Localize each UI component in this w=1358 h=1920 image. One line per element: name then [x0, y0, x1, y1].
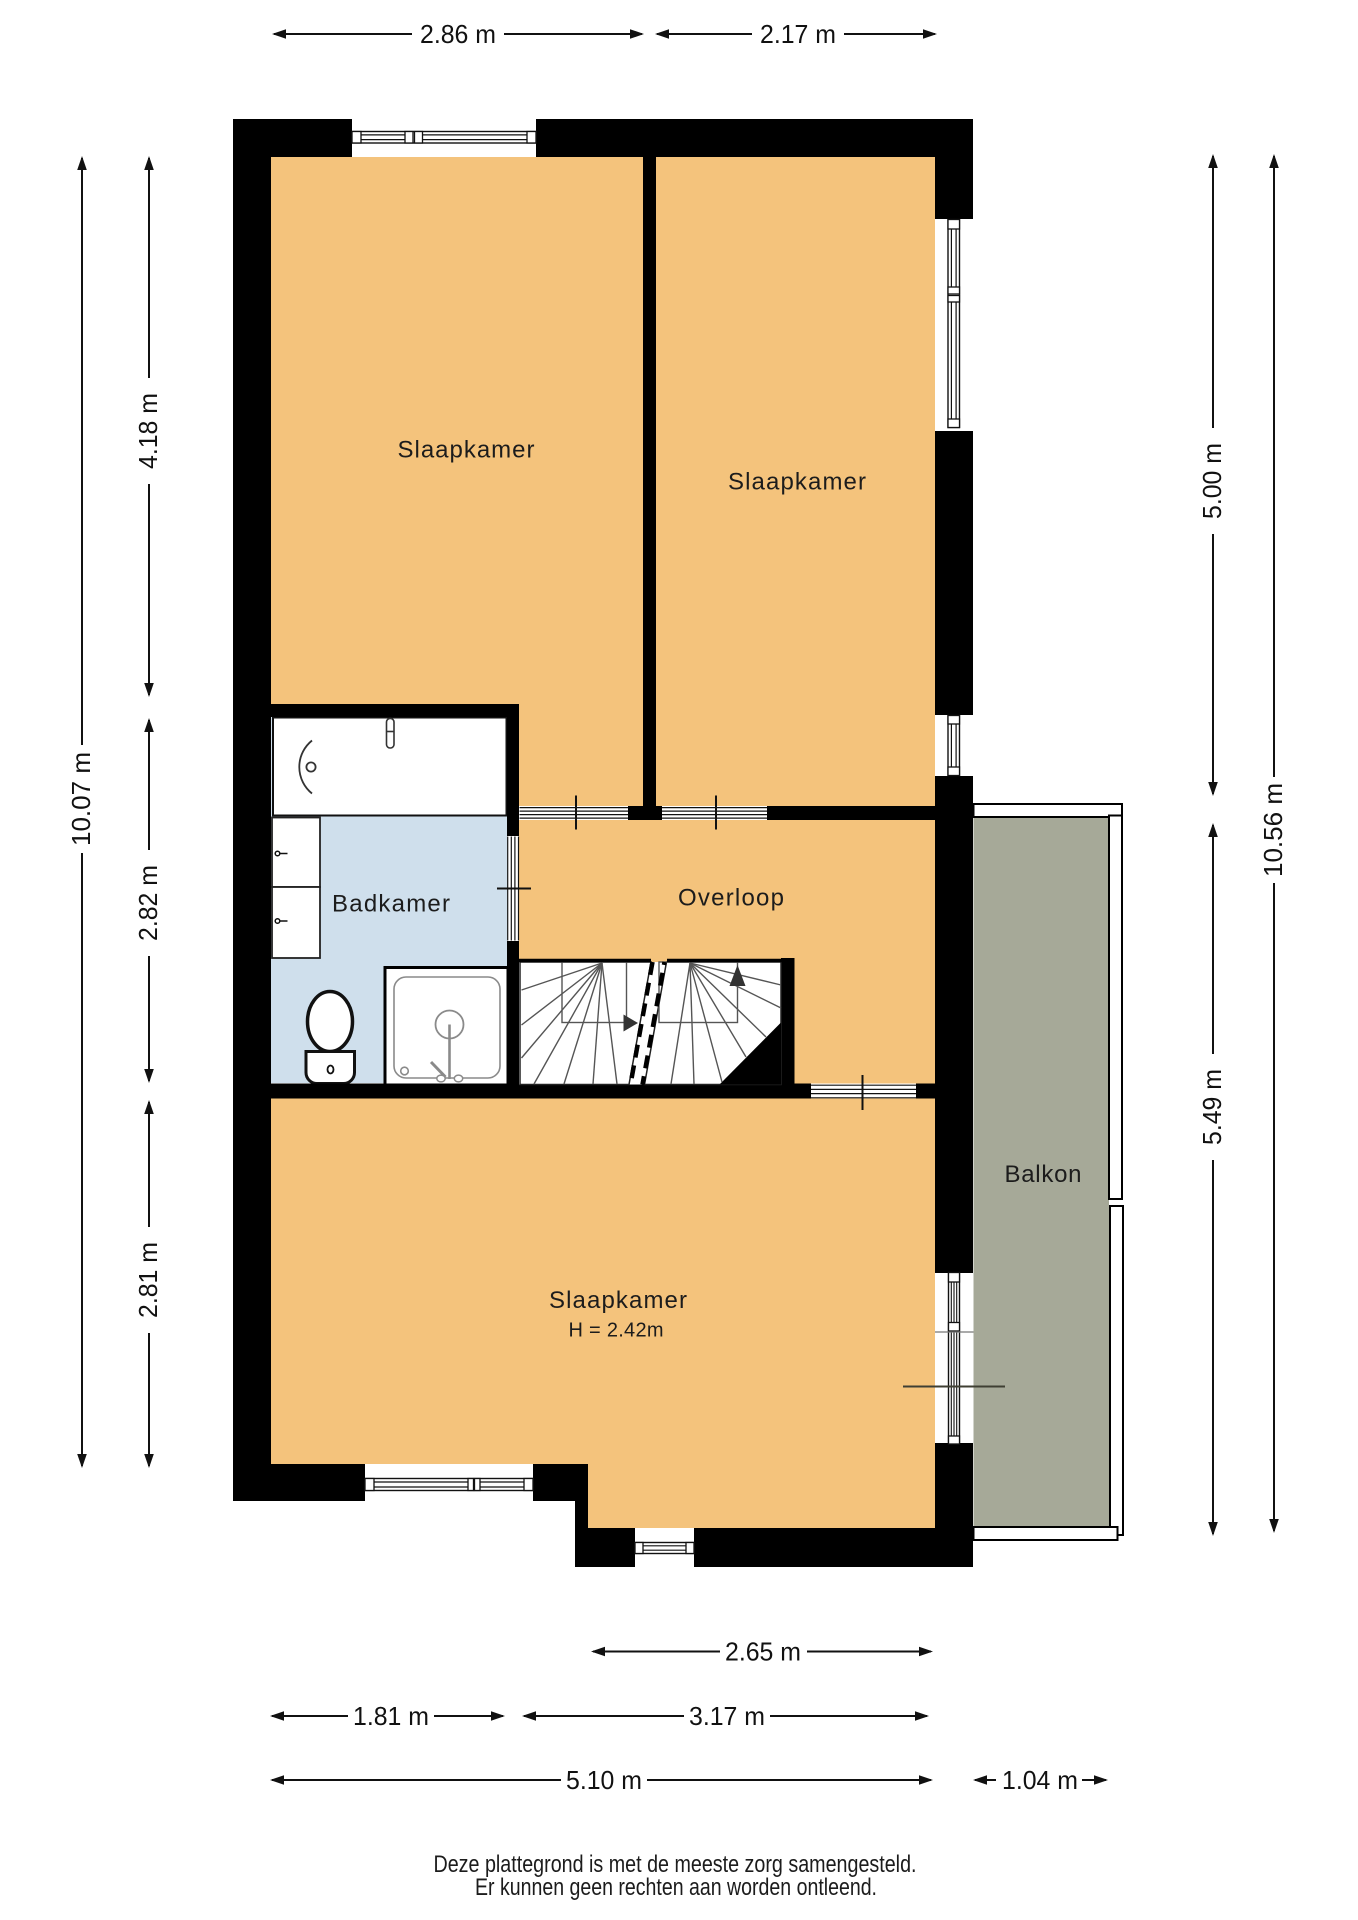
svg-text:Slaapkamer: Slaapkamer [398, 437, 535, 464]
svg-text:2.81 m: 2.81 m [133, 1242, 163, 1318]
svg-text:2.86 m: 2.86 m [420, 19, 496, 49]
svg-text:2.65 m: 2.65 m [725, 1637, 801, 1667]
svg-text:Balkon: Balkon [1005, 1161, 1082, 1188]
svg-text:Badkamer: Badkamer [332, 891, 450, 918]
svg-text:2.82 m: 2.82 m [133, 865, 163, 941]
svg-text:5.00 m: 5.00 m [1197, 443, 1227, 519]
svg-text:4.18 m: 4.18 m [133, 393, 163, 469]
svg-text:H = 2.42m: H = 2.42m [569, 1320, 664, 1342]
svg-text:10.56 m: 10.56 m [1258, 783, 1288, 877]
svg-text:5.10 m: 5.10 m [566, 1765, 642, 1795]
svg-text:5.49 m: 5.49 m [1197, 1069, 1227, 1145]
svg-text:10.07 m: 10.07 m [66, 752, 96, 846]
svg-text:1.81 m: 1.81 m [353, 1701, 429, 1731]
svg-text:2.17 m: 2.17 m [760, 19, 836, 49]
svg-text:Slaapkamer: Slaapkamer [549, 1287, 687, 1314]
svg-text:1.04 m: 1.04 m [1002, 1765, 1078, 1795]
svg-text:Er kunnen geen rechten aan wor: Er kunnen geen rechten aan worden ontlee… [475, 1874, 877, 1901]
svg-text:3.17 m: 3.17 m [689, 1701, 765, 1731]
svg-text:Slaapkamer: Slaapkamer [728, 469, 866, 496]
svg-text:Overloop: Overloop [678, 885, 784, 912]
